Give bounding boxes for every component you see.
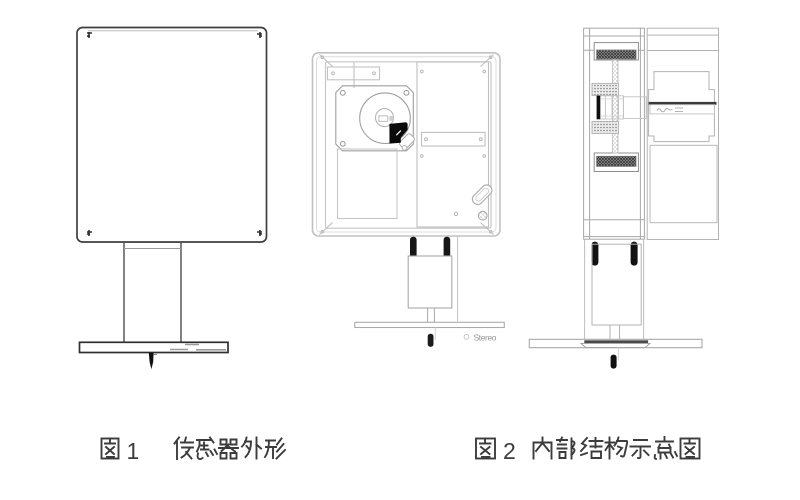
svg-text:2: 2 [503, 438, 516, 464]
svg-text:Stereo: Stereo [474, 332, 497, 342]
svg-text:1: 1 [127, 438, 140, 464]
